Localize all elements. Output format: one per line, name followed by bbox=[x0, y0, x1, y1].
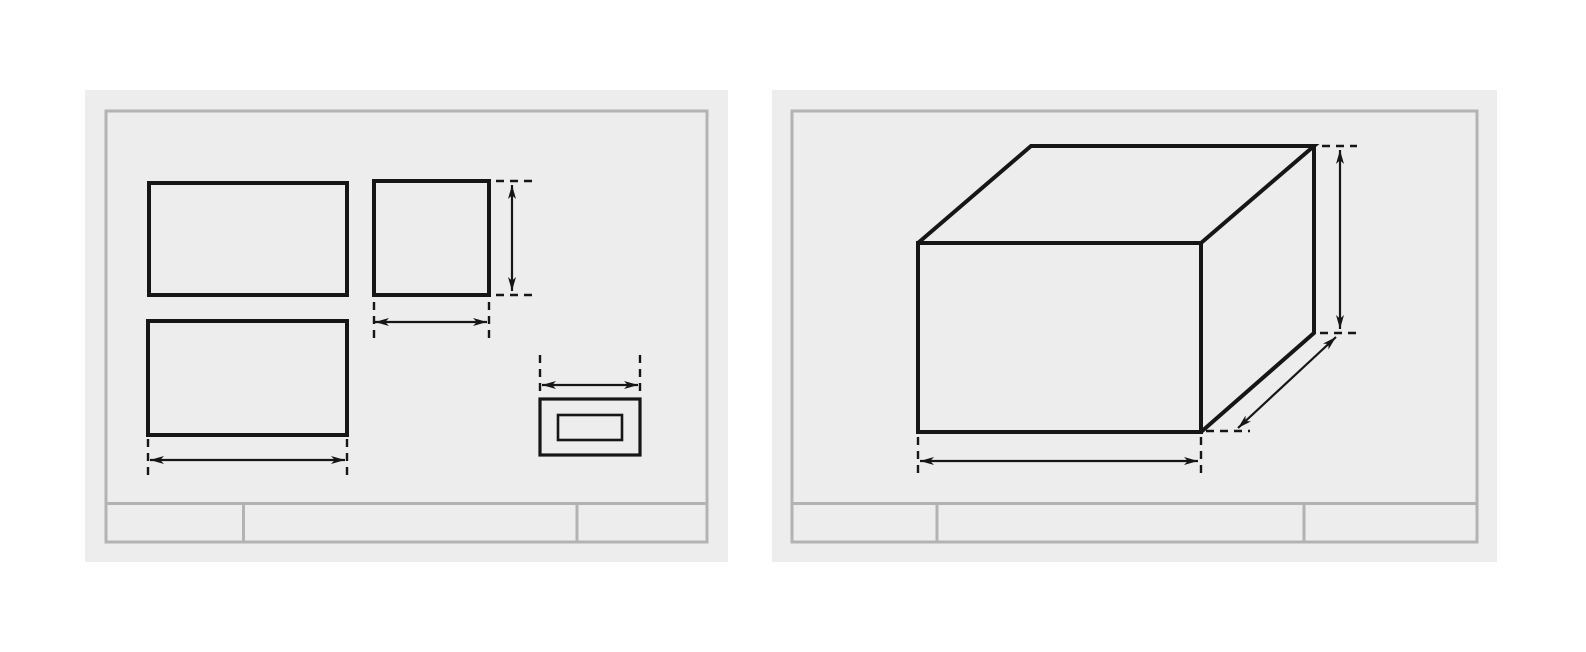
sheet-orthographic-views bbox=[85, 90, 728, 562]
isometric-view-sheet-drawing bbox=[772, 90, 1497, 562]
sheet-border-frame bbox=[106, 111, 707, 542]
front-view-rect bbox=[148, 321, 347, 435]
box-top-face bbox=[918, 146, 1314, 243]
page-canvas bbox=[0, 0, 1586, 652]
sheet-isometric-view bbox=[772, 90, 1497, 562]
side-view-rect bbox=[374, 181, 489, 295]
sheet-border-frame bbox=[792, 111, 1477, 542]
detail-view-outer-rect bbox=[540, 399, 640, 455]
orthographic-views-sheet-drawing bbox=[85, 90, 728, 562]
box-right-face bbox=[1201, 146, 1314, 432]
box-front-face bbox=[918, 243, 1201, 432]
depth-dim-arrow bbox=[1238, 337, 1336, 428]
detail-view-inner-rect bbox=[558, 415, 622, 440]
top-view-rect bbox=[149, 183, 347, 295]
